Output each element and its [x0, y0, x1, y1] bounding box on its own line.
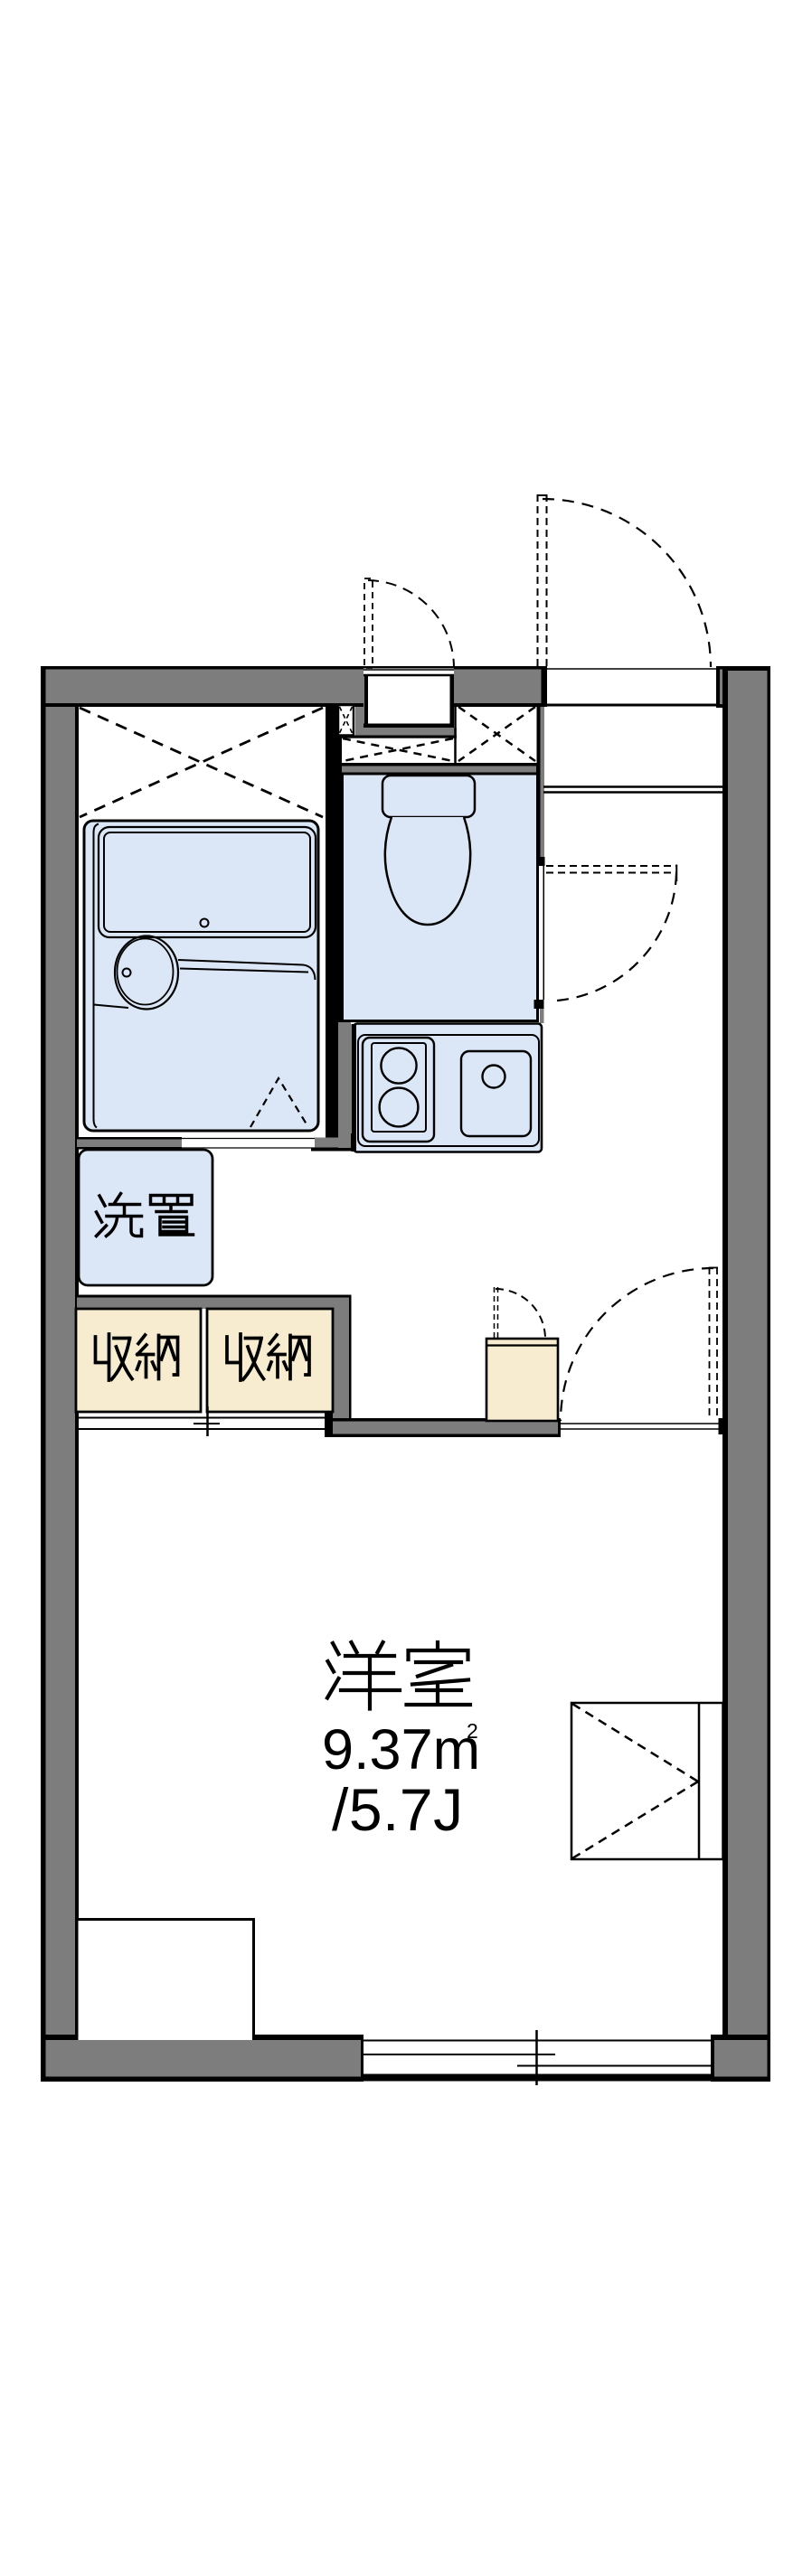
- svg-text:9.37m: 9.37m: [322, 1718, 480, 1782]
- svg-text:2: 2: [467, 1719, 478, 1743]
- svg-text:/5.7J: /5.7J: [332, 1776, 464, 1843]
